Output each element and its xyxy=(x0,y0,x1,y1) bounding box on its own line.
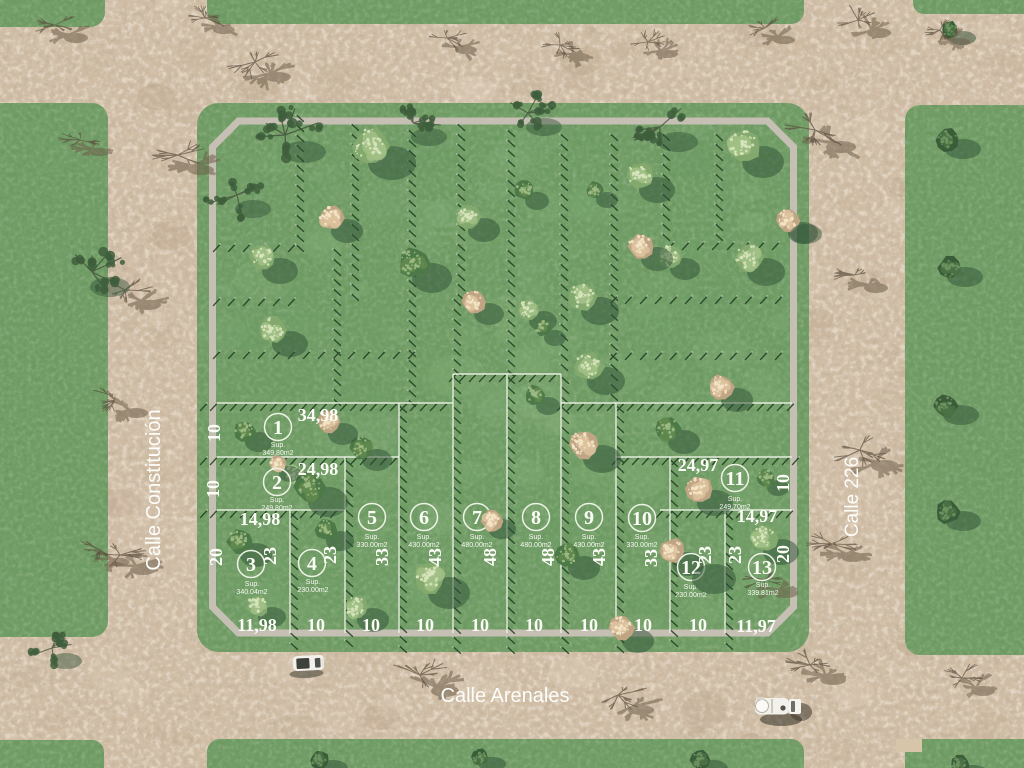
svg-text:349.80m2: 349.80m2 xyxy=(262,450,293,457)
svg-text:24,97: 24,97 xyxy=(678,455,719,475)
svg-text:Sup.: Sup. xyxy=(635,534,649,541)
svg-text:48: 48 xyxy=(538,548,558,566)
svg-text:Sup.: Sup. xyxy=(529,534,543,541)
svg-text:Sup.: Sup. xyxy=(365,534,379,541)
svg-text:Sup.: Sup. xyxy=(417,534,431,541)
svg-text:33: 33 xyxy=(641,549,661,567)
svg-text:330.00m2: 330.00m2 xyxy=(356,542,387,549)
svg-text:34,98: 34,98 xyxy=(298,405,339,425)
svg-text:10: 10 xyxy=(580,615,598,635)
svg-text:11,98: 11,98 xyxy=(237,615,277,635)
svg-text:1: 1 xyxy=(273,417,283,439)
svg-text:11,97: 11,97 xyxy=(736,616,776,636)
svg-text:43: 43 xyxy=(425,548,445,566)
svg-text:430.00m2: 430.00m2 xyxy=(573,542,604,549)
svg-text:2: 2 xyxy=(272,472,282,494)
svg-text:7: 7 xyxy=(472,507,482,529)
svg-text:23: 23 xyxy=(725,546,745,564)
svg-text:9: 9 xyxy=(584,507,594,529)
svg-text:10: 10 xyxy=(416,615,434,635)
svg-text:Sup.: Sup. xyxy=(245,581,259,588)
svg-text:430.00m2: 430.00m2 xyxy=(408,542,439,549)
svg-text:480.00m2: 480.00m2 xyxy=(461,542,492,549)
svg-text:10: 10 xyxy=(471,615,489,635)
svg-text:249.80m2: 249.80m2 xyxy=(261,505,292,512)
svg-text:23: 23 xyxy=(260,547,280,565)
svg-text:10: 10 xyxy=(632,508,652,530)
svg-text:33: 33 xyxy=(372,548,392,566)
svg-text:11: 11 xyxy=(726,468,745,490)
svg-text:10: 10 xyxy=(634,615,652,635)
svg-text:10: 10 xyxy=(204,424,224,442)
svg-text:Sup.: Sup. xyxy=(271,442,285,449)
svg-text:Sup.: Sup. xyxy=(270,497,284,504)
svg-text:10: 10 xyxy=(689,615,707,635)
svg-text:340.04m2: 340.04m2 xyxy=(236,589,267,596)
svg-text:8: 8 xyxy=(531,507,541,529)
svg-text:20: 20 xyxy=(206,548,226,566)
svg-text:10: 10 xyxy=(773,474,793,492)
svg-text:Calle 226: Calle 226 xyxy=(842,457,863,537)
svg-text:Sup.: Sup. xyxy=(756,582,770,589)
svg-text:4: 4 xyxy=(307,553,317,575)
svg-text:Sup.: Sup. xyxy=(306,579,320,586)
svg-text:10: 10 xyxy=(525,615,543,635)
svg-text:Calle Constitución: Calle Constitución xyxy=(143,409,165,570)
svg-text:230.00m2: 230.00m2 xyxy=(675,592,706,599)
svg-text:14,98: 14,98 xyxy=(240,509,281,529)
svg-text:13: 13 xyxy=(752,557,772,579)
svg-text:Sup.: Sup. xyxy=(728,496,742,503)
svg-text:20: 20 xyxy=(773,545,793,563)
svg-text:48: 48 xyxy=(480,548,500,566)
svg-text:249.70m2: 249.70m2 xyxy=(719,504,750,511)
svg-text:3: 3 xyxy=(246,554,256,576)
svg-text:6: 6 xyxy=(419,507,429,529)
svg-text:5: 5 xyxy=(367,507,377,529)
svg-text:Sup.: Sup. xyxy=(470,534,484,541)
svg-text:480.00m2: 480.00m2 xyxy=(520,542,551,549)
svg-text:24,98: 24,98 xyxy=(298,459,339,479)
svg-text:339.81m2: 339.81m2 xyxy=(747,590,778,597)
svg-text:43: 43 xyxy=(589,548,609,566)
svg-text:10: 10 xyxy=(362,615,380,635)
svg-text:330.00m2: 330.00m2 xyxy=(626,542,657,549)
svg-text:Sup.: Sup. xyxy=(582,534,596,541)
svg-text:10: 10 xyxy=(203,480,223,498)
svg-text:Calle Arenales: Calle Arenales xyxy=(441,685,570,707)
svg-text:230.00m2: 230.00m2 xyxy=(297,587,328,594)
svg-text:10: 10 xyxy=(307,615,325,635)
